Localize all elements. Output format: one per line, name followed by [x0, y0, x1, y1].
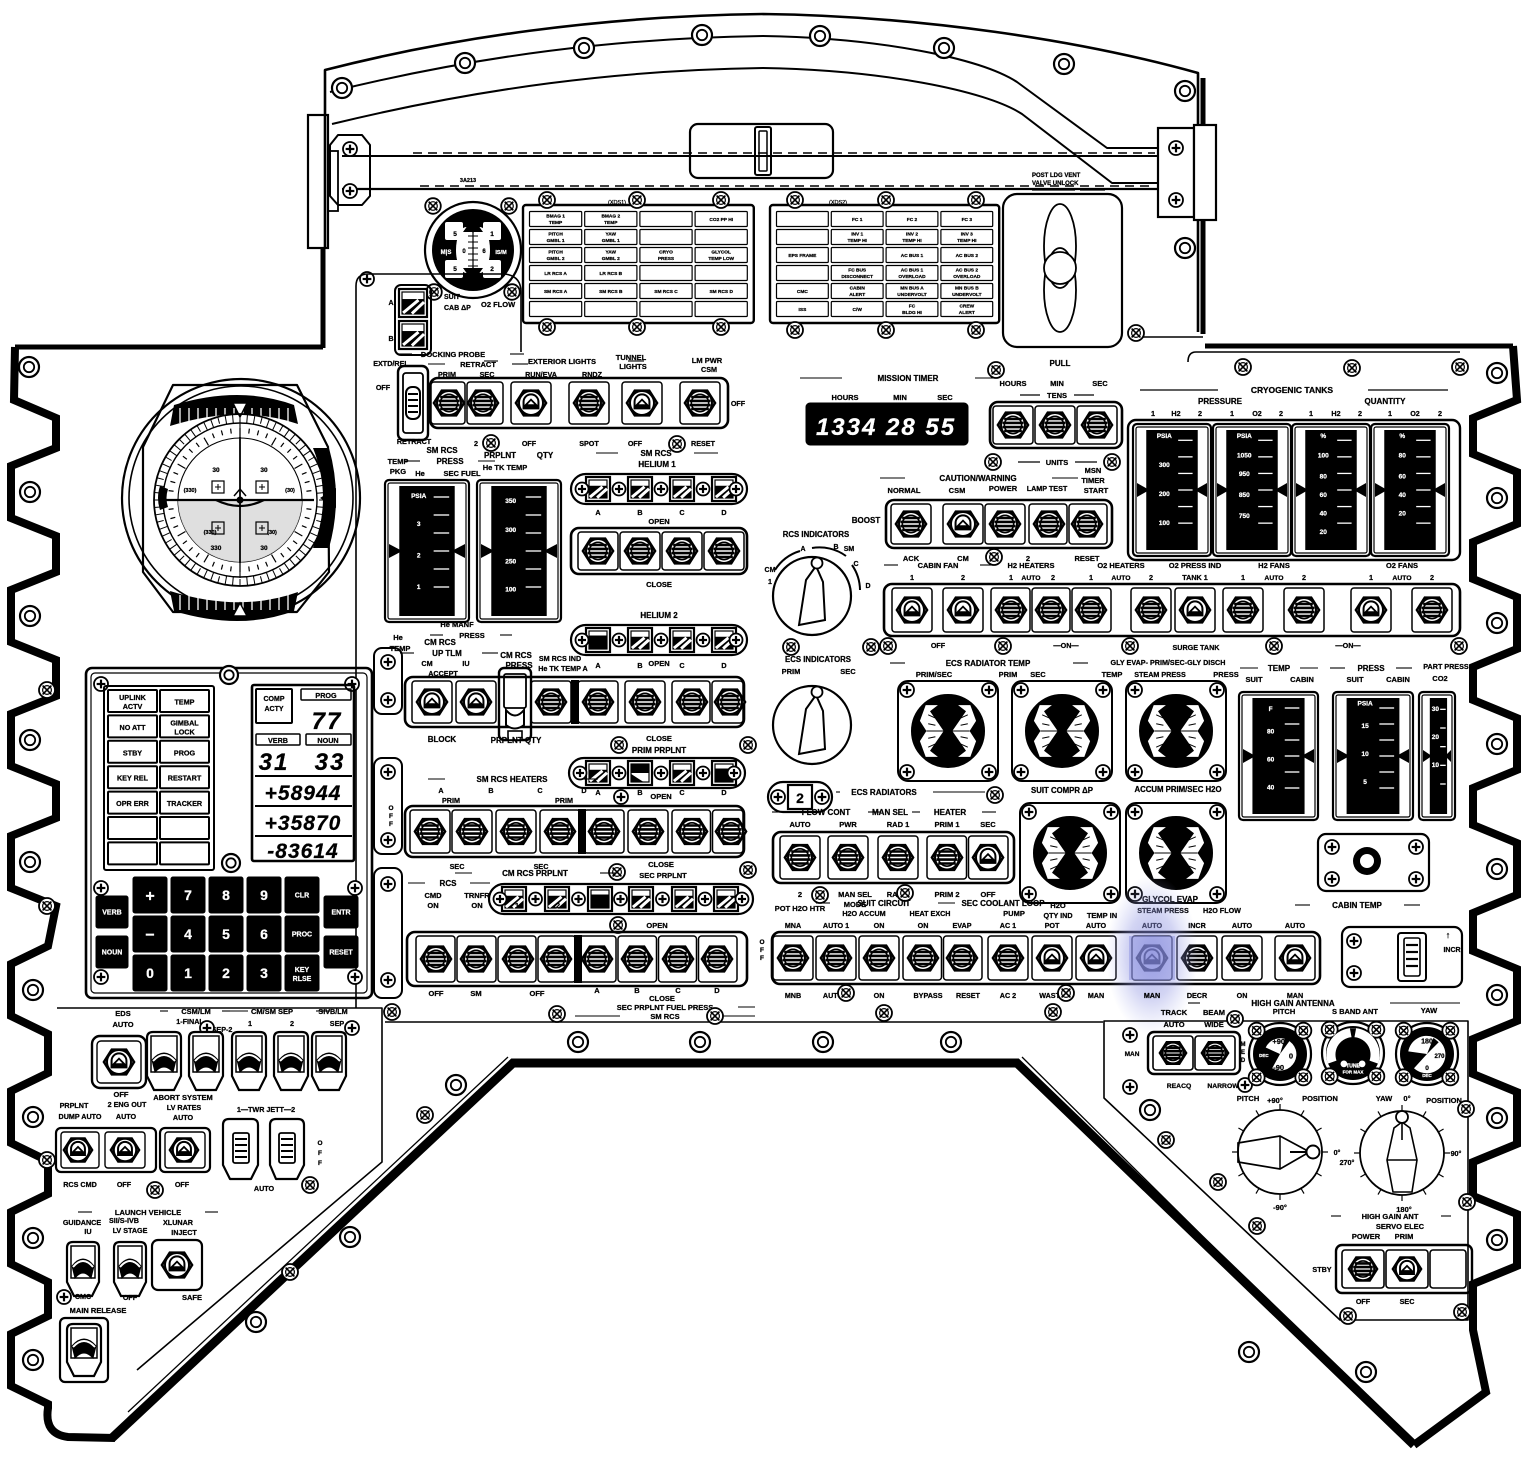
- svg-text:AUTO: AUTO: [1163, 1020, 1184, 1029]
- svg-text:AUTO: AUTO: [1111, 575, 1130, 582]
- svg-text:He: He: [415, 469, 425, 478]
- svg-text:SM RCS: SM RCS: [640, 449, 672, 458]
- svg-text:AC 2: AC 2: [1000, 991, 1016, 1000]
- svg-text:D: D: [581, 786, 586, 795]
- svg-text:PROG: PROG: [315, 691, 337, 700]
- svg-text:ISS: ISS: [799, 307, 808, 313]
- svg-text:(30): (30): [267, 530, 277, 536]
- svg-text:AUTO: AUTO: [1232, 921, 1253, 930]
- svg-text:2: 2: [556, 901, 560, 910]
- svg-text:UNDERVOLT: UNDERVOLT: [952, 292, 981, 298]
- svg-text:XLUNAR: XLUNAR: [163, 1218, 194, 1227]
- svg-text:F: F: [760, 947, 764, 954]
- svg-text:—ON—: —ON—: [1053, 641, 1079, 650]
- svg-text:PRIM: PRIM: [999, 670, 1018, 679]
- svg-text:A: A: [595, 508, 600, 517]
- svg-text:TEMP: TEMP: [1102, 670, 1123, 679]
- svg-text:VALVE UNLOCK: VALVE UNLOCK: [1032, 181, 1079, 187]
- svg-text:HOURS: HOURS: [831, 393, 858, 402]
- svg-text:1: 1: [490, 231, 494, 238]
- svg-text:POSITION: POSITION: [1426, 1096, 1462, 1105]
- svg-text:CO2 PP HI: CO2 PP HI: [709, 217, 733, 223]
- svg-text:5: 5: [222, 926, 230, 942]
- svg-text:—ON—: —ON—: [1335, 641, 1361, 650]
- svg-text:TEMP: TEMP: [175, 698, 195, 707]
- svg-text:+35870: +35870: [265, 812, 342, 835]
- svg-text:SM: SM: [470, 989, 481, 998]
- svg-text:ON: ON: [471, 901, 482, 910]
- svg-text:7: 7: [184, 887, 192, 903]
- svg-text:LR RCS B: LR RCS B: [599, 271, 622, 277]
- svg-text:OFF: OFF: [628, 439, 643, 448]
- svg-text:AC BUS 1: AC BUS 1: [901, 268, 924, 274]
- svg-text:SEC: SEC: [1092, 379, 1108, 388]
- svg-text:PSIA: PSIA: [1157, 433, 1172, 440]
- svg-text:80: 80: [1399, 453, 1407, 460]
- svg-text:TEMP HI: TEMP HI: [848, 238, 868, 244]
- svg-text:CM RCS PRPLNT: CM RCS PRPLNT: [502, 869, 568, 878]
- svg-text:SUIT: SUIT: [1346, 675, 1364, 684]
- svg-text:PART PRESS: PART PRESS: [1423, 662, 1469, 671]
- svg-text:1: 1: [1009, 573, 1013, 582]
- svg-text:0: 0: [146, 965, 154, 981]
- svg-text:INV 3: INV 3: [961, 232, 973, 238]
- svg-text:DECR: DECR: [1187, 991, 1208, 1000]
- svg-text:PRESS: PRESS: [658, 256, 675, 262]
- svg-text:IU: IU: [84, 1227, 91, 1236]
- svg-text:EDS: EDS: [115, 1009, 130, 1018]
- svg-text:D: D: [721, 788, 726, 797]
- svg-text:CM: CM: [957, 554, 969, 563]
- svg-text:SM RCS C: SM RCS C: [654, 289, 678, 295]
- svg-text:CMC: CMC: [75, 1292, 91, 1301]
- svg-text:LM PWR: LM PWR: [692, 356, 723, 365]
- svg-text:INV 2: INV 2: [906, 232, 918, 238]
- svg-text:MISSION TIMER: MISSION TIMER: [878, 374, 939, 383]
- svg-text:3: 3: [417, 521, 421, 528]
- svg-text:TEMP: TEMP: [604, 220, 618, 226]
- svg-text:CABIN: CABIN: [1386, 675, 1410, 684]
- svg-text:ON: ON: [427, 901, 438, 910]
- svg-text:C/W: C/W: [853, 307, 863, 313]
- svg-text:TEMP: TEMP: [1268, 664, 1291, 673]
- svg-text:AUTO: AUTO: [173, 1113, 194, 1122]
- svg-text:EXTERIOR LIGHTS: EXTERIOR LIGHTS: [528, 357, 596, 366]
- svg-text:YAW: YAW: [606, 250, 617, 256]
- svg-text:RCS: RCS: [440, 879, 458, 888]
- svg-text:MAN: MAN: [1088, 991, 1104, 1000]
- svg-text:QUANTITY: QUANTITY: [1365, 397, 1407, 406]
- svg-text:BYPASS: BYPASS: [913, 991, 942, 1000]
- svg-text:1334 28 55: 1334 28 55: [816, 414, 956, 441]
- svg-text:O2: O2: [1410, 409, 1420, 418]
- svg-text:POSITION: POSITION: [1302, 1094, 1338, 1103]
- svg-text:LR RCS A: LR RCS A: [544, 271, 567, 277]
- svg-text:8: 8: [222, 887, 230, 903]
- svg-text:SERVO ELEC: SERVO ELEC: [1376, 1222, 1425, 1231]
- svg-text:KEY REL: KEY REL: [117, 774, 149, 783]
- svg-text:OFF: OFF: [114, 1090, 129, 1099]
- svg-text:B: B: [634, 986, 640, 995]
- svg-text:HEATER: HEATER: [934, 808, 967, 817]
- svg-text:UP TLM: UP TLM: [432, 649, 462, 658]
- svg-text:RESET: RESET: [956, 991, 981, 1000]
- svg-text:PRIM PRPLNT: PRIM PRPLNT: [632, 746, 686, 755]
- svg-text:TIMER: TIMER: [1081, 476, 1105, 485]
- svg-text:A: A: [594, 986, 600, 995]
- svg-text:OFF: OFF: [123, 1293, 138, 1302]
- svg-text:HELIUM 1: HELIUM 1: [638, 460, 676, 469]
- svg-text:AC 1: AC 1: [1000, 921, 1016, 930]
- svg-text:H2: H2: [1171, 409, 1180, 418]
- svg-text:SEC: SEC: [1030, 670, 1046, 679]
- svg-text:1: 1: [1151, 409, 1155, 418]
- svg-text:BEAM: BEAM: [1203, 1008, 1225, 1017]
- svg-text:AUTO: AUTO: [1021, 575, 1040, 582]
- svg-text:A: A: [595, 788, 600, 797]
- svg-text:GIMBAL: GIMBAL: [170, 718, 199, 727]
- svg-text:VERB: VERB: [102, 910, 121, 917]
- svg-text:PRESS: PRESS: [1357, 664, 1385, 673]
- svg-text:CRYO: CRYO: [659, 250, 673, 256]
- svg-text:40: 40: [1320, 511, 1328, 518]
- svg-text:A: A: [388, 300, 393, 307]
- svg-text:SEC COOLANT LOOP: SEC COOLANT LOOP: [961, 899, 1045, 908]
- svg-text:UNDERVOLT: UNDERVOLT: [897, 292, 926, 298]
- svg-text:ACTV: ACTV: [123, 702, 143, 711]
- svg-text:77: 77: [312, 708, 343, 735]
- svg-text:C: C: [679, 661, 684, 670]
- svg-text:RESET: RESET: [1074, 554, 1099, 563]
- svg-text:LOCK: LOCK: [174, 727, 195, 736]
- svg-text:NORMAL: NORMAL: [888, 486, 921, 495]
- svg-text:270°: 270°: [1340, 1158, 1355, 1167]
- svg-text:POT: POT: [1045, 921, 1060, 930]
- svg-text:TUNNEL: TUNNEL: [616, 353, 647, 362]
- svg-text:%: %: [1399, 433, 1405, 440]
- svg-text:OFF: OFF: [117, 1180, 132, 1189]
- svg-text:40: 40: [1399, 492, 1407, 499]
- svg-text:−: −: [145, 927, 154, 944]
- svg-text:CSM: CSM: [949, 486, 966, 495]
- svg-text:(330): (330): [204, 530, 217, 536]
- svg-text:950: 950: [1239, 471, 1250, 478]
- svg-text:FOR MAX: FOR MAX: [1343, 1069, 1364, 1074]
- svg-text:B: B: [388, 336, 393, 343]
- svg-text:2: 2: [1358, 409, 1362, 418]
- svg-text:SM RCS IND: SM RCS IND: [539, 654, 581, 663]
- svg-text:OPEN: OPEN: [650, 792, 671, 801]
- svg-text:AUTO: AUTO: [254, 1184, 275, 1193]
- svg-text:ALERT: ALERT: [849, 292, 865, 298]
- svg-text:AUTO: AUTO: [116, 1112, 137, 1121]
- svg-text:MIN: MIN: [1050, 379, 1064, 388]
- svg-text:TEMP HI: TEMP HI: [902, 238, 922, 244]
- svg-text:ECS INDICATORS: ECS INDICATORS: [785, 655, 851, 664]
- svg-text:3A213: 3A213: [460, 178, 476, 184]
- svg-text:KEY: KEY: [295, 967, 310, 974]
- svg-text:YAW: YAW: [606, 232, 617, 238]
- svg-text:90°: 90°: [1451, 1149, 1462, 1158]
- svg-text:A: A: [595, 661, 600, 670]
- svg-text:NO ATT: NO ATT: [120, 723, 147, 732]
- svg-text:GMBL 2: GMBL 2: [547, 256, 565, 262]
- svg-text:CSM/LM: CSM/LM: [181, 1007, 211, 1016]
- svg-text:F: F: [760, 955, 764, 962]
- svg-text:1050: 1050: [1237, 453, 1252, 460]
- svg-text:↑: ↑: [1446, 930, 1451, 940]
- svg-text:MNA: MNA: [785, 921, 801, 930]
- svg-text:330: 330: [211, 545, 222, 552]
- svg-text:AUTO: AUTO: [1264, 575, 1283, 582]
- svg-text:PRIM: PRIM: [782, 667, 801, 676]
- svg-text:1: 1: [417, 584, 421, 591]
- svg-text:2: 2: [490, 266, 494, 273]
- svg-text:TRNFR: TRNFR: [464, 891, 490, 900]
- svg-text:5: 5: [453, 231, 457, 238]
- svg-text:B: B: [637, 788, 642, 797]
- svg-text:NOUN: NOUN: [102, 950, 123, 957]
- svg-text:CM/SM SEP: CM/SM SEP: [251, 1007, 293, 1016]
- svg-text:D: D: [721, 661, 726, 670]
- svg-text:HELIUM 2: HELIUM 2: [640, 611, 678, 620]
- svg-text:PWR: PWR: [839, 820, 857, 829]
- svg-text:GMBL 1: GMBL 1: [602, 238, 620, 244]
- svg-text:1: 1: [1388, 409, 1392, 418]
- svg-text:RAD 1: RAD 1: [887, 820, 910, 829]
- svg-text:GMBL 1: GMBL 1: [547, 238, 565, 244]
- svg-text:60: 60: [1267, 757, 1275, 764]
- svg-text:PKG: PKG: [390, 467, 406, 476]
- svg-text:-83614: -83614: [267, 840, 338, 863]
- svg-text:100: 100: [505, 586, 516, 593]
- svg-text:ECS RADIATOR TEMP: ECS RADIATOR TEMP: [946, 659, 1031, 668]
- svg-text:FLOW CONT: FLOW CONT: [802, 808, 851, 817]
- svg-text:FC 1: FC 1: [852, 217, 863, 223]
- svg-text:INCR: INCR: [1443, 947, 1460, 954]
- svg-text:80: 80: [1267, 729, 1275, 736]
- svg-text:REACQ: REACQ: [1167, 1083, 1192, 1090]
- svg-text:O: O: [759, 939, 764, 946]
- svg-text:MNB: MNB: [785, 991, 801, 1000]
- svg-text:ALERT: ALERT: [959, 310, 975, 316]
- svg-text:0°: 0°: [1334, 1148, 1341, 1157]
- svg-text:TEMP LOW: TEMP LOW: [708, 256, 734, 262]
- svg-text:1: 1: [515, 901, 519, 910]
- svg-text:1: 1: [248, 1019, 252, 1028]
- svg-text:PRIM 2: PRIM 2: [934, 890, 959, 899]
- svg-text:ENTR: ENTR: [331, 910, 350, 917]
- svg-text:OFF: OFF: [981, 890, 996, 899]
- svg-text:O: O: [388, 805, 393, 812]
- svg-text:GLY EVAP- PRIM/SEC-GLY DISCH: GLY EVAP- PRIM/SEC-GLY DISCH: [1111, 658, 1226, 667]
- svg-text:SURGE TANK: SURGE TANK: [1173, 643, 1221, 652]
- svg-text:90: 90: [1412, 1053, 1420, 1060]
- svg-text:-90°: -90°: [1273, 1203, 1287, 1212]
- svg-text:POWER: POWER: [989, 484, 1018, 493]
- svg-text:ON: ON: [1237, 991, 1248, 1000]
- svg-text:DEC: DEC: [1422, 1073, 1432, 1078]
- svg-text:30: 30: [212, 467, 220, 474]
- svg-text:60: 60: [1320, 492, 1328, 499]
- svg-text:F: F: [389, 813, 393, 820]
- svg-text:O2 HEATERS: O2 HEATERS: [1097, 561, 1144, 570]
- svg-text:PSIA: PSIA: [1357, 701, 1372, 708]
- svg-text:40: 40: [1267, 785, 1275, 792]
- svg-text:TRACK: TRACK: [1161, 1008, 1188, 1017]
- svg-text:O2 FLOW: O2 FLOW: [481, 300, 516, 309]
- svg-text:BOOST: BOOST: [852, 516, 881, 525]
- svg-text:SM: SM: [844, 546, 855, 553]
- svg-text:3: 3: [260, 965, 268, 981]
- svg-text:AC BUS 2: AC BUS 2: [956, 268, 979, 274]
- svg-text:CREW: CREW: [959, 304, 974, 310]
- svg-text:COMP: COMP: [264, 696, 285, 703]
- svg-text:0: 0: [1425, 1065, 1429, 1072]
- svg-text:H2 HEATERS: H2 HEATERS: [1008, 561, 1055, 570]
- svg-text:100: 100: [1318, 453, 1329, 460]
- svg-text:6: 6: [260, 926, 268, 942]
- svg-text:PRPLNT: PRPLNT: [60, 1101, 89, 1110]
- svg-text:GUIDANCE: GUIDANCE: [63, 1218, 102, 1227]
- svg-text:B: B: [637, 661, 642, 670]
- svg-text:1—TWR JETT—2: 1—TWR JETT—2: [237, 1105, 295, 1114]
- svg-text:2: 2: [1438, 409, 1442, 418]
- svg-text:PRPLNT: PRPLNT: [484, 451, 516, 460]
- svg-text:+: +: [145, 888, 154, 905]
- svg-text:EPS FRAME: EPS FRAME: [788, 253, 817, 259]
- svg-text:9: 9: [260, 887, 268, 903]
- svg-text:30: 30: [260, 545, 268, 552]
- svg-text:33: 33: [315, 749, 346, 776]
- svg-text:2: 2: [1430, 573, 1434, 582]
- svg-text:CABIN TEMP: CABIN TEMP: [1332, 901, 1382, 910]
- svg-text:YAW: YAW: [1376, 1094, 1393, 1103]
- svg-text:F: F: [318, 1150, 322, 1157]
- svg-text:He TK TEMP: He TK TEMP: [483, 463, 528, 472]
- svg-text:SIVB/LM: SIVB/LM: [318, 1007, 347, 1016]
- svg-text:BMAG 1: BMAG 1: [546, 214, 565, 220]
- svg-text:FC 2: FC 2: [907, 217, 918, 223]
- svg-text:850: 850: [1239, 492, 1250, 499]
- svg-text:F: F: [389, 821, 393, 828]
- svg-text:%: %: [1320, 433, 1326, 440]
- svg-text:MAN: MAN: [1125, 1051, 1140, 1058]
- svg-text:SEC: SEC: [937, 393, 953, 402]
- svg-text:SEC FUEL: SEC FUEL: [443, 469, 481, 478]
- svg-text:START: START: [1084, 486, 1109, 495]
- svg-text:IS/M: IS/M: [495, 250, 507, 256]
- svg-text:ON: ON: [874, 991, 885, 1000]
- svg-text:YAW: YAW: [1421, 1006, 1438, 1015]
- svg-text:20: 20: [1432, 734, 1440, 741]
- svg-text:AUTO 1: AUTO 1: [823, 921, 849, 930]
- svg-text:SEC PRPLNT: SEC PRPLNT: [639, 871, 687, 880]
- svg-text:TRACKER: TRACKER: [167, 799, 203, 808]
- svg-text:SM RCS A: SM RCS A: [544, 289, 568, 295]
- svg-text:RCS INDICATORS: RCS INDICATORS: [783, 530, 849, 539]
- svg-text:(330): (330): [184, 488, 197, 494]
- svg-text:PITCH: PITCH: [1273, 1007, 1296, 1016]
- svg-text:4: 4: [184, 926, 192, 942]
- svg-text:C: C: [675, 986, 681, 995]
- svg-text:AUTO: AUTO: [1086, 921, 1107, 930]
- svg-text:MN BUS B: MN BUS B: [955, 286, 979, 292]
- svg-text:SEC: SEC: [840, 667, 856, 676]
- svg-text:PRIM 1: PRIM 1: [934, 820, 959, 829]
- svg-text:5: 5: [1363, 779, 1367, 786]
- svg-text:OFF: OFF: [1356, 1297, 1371, 1306]
- svg-text:UPLINK: UPLINK: [119, 693, 147, 702]
- svg-text:F: F: [318, 1160, 322, 1167]
- svg-text:INV 1: INV 1: [851, 232, 863, 238]
- svg-text:CMD: CMD: [424, 891, 442, 900]
- svg-text:SM RCS HEATERS: SM RCS HEATERS: [477, 775, 549, 784]
- svg-text:30: 30: [260, 467, 268, 474]
- svg-text:SUIT: SUIT: [444, 294, 461, 301]
- svg-text:D: D: [721, 508, 726, 517]
- svg-text:CM: CM: [421, 659, 432, 668]
- svg-text:LAMP TEST: LAMP TEST: [1027, 484, 1068, 493]
- svg-text:HIGH GAIN ANT: HIGH GAIN ANT: [1362, 1212, 1419, 1221]
- svg-text:OFF: OFF: [175, 1180, 190, 1189]
- svg-text:PROC: PROC: [292, 932, 312, 939]
- svg-text:O: O: [317, 1140, 322, 1147]
- svg-text:CAUTION/WARNING: CAUTION/WARNING: [939, 474, 1016, 483]
- svg-text:OFF: OFF: [376, 383, 391, 392]
- svg-text:MAN SEL: MAN SEL: [872, 808, 908, 817]
- svg-text:1: 1: [1241, 573, 1245, 582]
- svg-text:GLYCOL: GLYCOL: [711, 250, 731, 256]
- svg-text:He: He: [393, 633, 403, 642]
- svg-text:MSN: MSN: [1085, 466, 1102, 475]
- svg-text:SM RCS D: SM RCS D: [709, 289, 733, 295]
- svg-text:5: 5: [453, 266, 457, 273]
- svg-text:(XDS1): (XDS1): [608, 200, 626, 206]
- svg-text:SEC: SEC: [980, 820, 996, 829]
- svg-text:2: 2: [1051, 573, 1055, 582]
- svg-text:S BAND ANT: S BAND ANT: [1332, 1007, 1378, 1016]
- svg-text:BLOCK: BLOCK: [428, 735, 457, 744]
- svg-text:H2: H2: [1331, 409, 1340, 418]
- svg-text:AUTO: AUTO: [1285, 921, 1306, 930]
- svg-text:2: 2: [1302, 573, 1306, 582]
- svg-text:IU: IU: [462, 659, 469, 668]
- svg-text:QTY IND: QTY IND: [1043, 911, 1072, 920]
- svg-text:PRESS: PRESS: [459, 631, 484, 640]
- svg-text:20: 20: [1320, 529, 1328, 536]
- svg-text:D: D: [865, 583, 870, 590]
- svg-text:PRIM/SEC: PRIM/SEC: [916, 670, 953, 679]
- svg-text:+90: +90: [1272, 1037, 1285, 1046]
- svg-text:PITCH: PITCH: [548, 232, 563, 238]
- svg-text:SEC PRPLNT FUEL PRESS: SEC PRPLNT FUEL PRESS: [617, 1003, 714, 1012]
- svg-text:TEMP: TEMP: [549, 220, 563, 226]
- svg-text:OPEN: OPEN: [646, 921, 667, 930]
- svg-text:CO2: CO2: [1432, 674, 1447, 683]
- svg-text:PRIM: PRIM: [555, 796, 573, 805]
- svg-text:SEC: SEC: [1400, 1297, 1415, 1306]
- svg-text:FC: FC: [909, 304, 916, 310]
- svg-text:B: B: [833, 544, 838, 551]
- svg-text:PRESS: PRESS: [1213, 670, 1238, 679]
- svg-text:CSM: CSM: [701, 365, 717, 374]
- svg-text:RETRACT: RETRACT: [397, 437, 432, 446]
- svg-text:300: 300: [1159, 462, 1170, 469]
- svg-text:He MANF: He MANF: [440, 620, 474, 629]
- svg-text:PUMP: PUMP: [1003, 909, 1025, 918]
- svg-text:OPEN: OPEN: [648, 517, 669, 526]
